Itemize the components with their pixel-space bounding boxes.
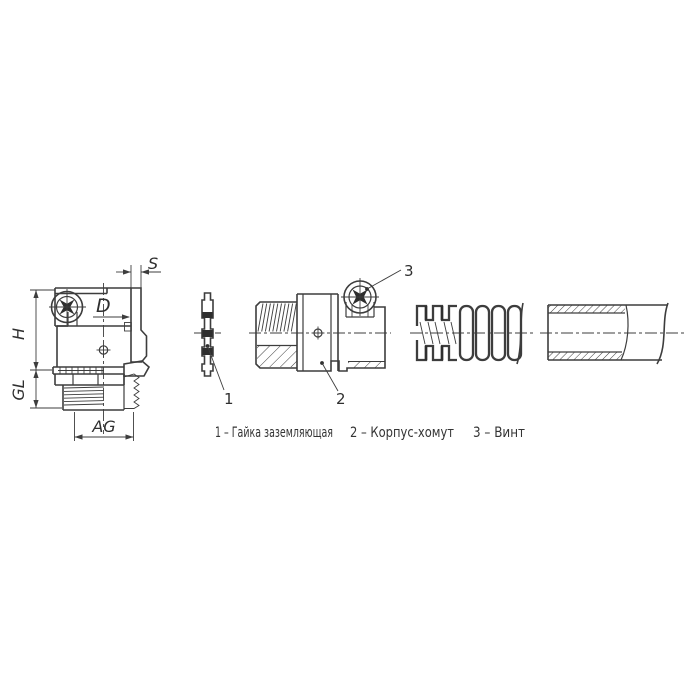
technical-drawing-page: S D H GL bbox=[0, 0, 700, 700]
callout-3-label: 3 bbox=[404, 262, 414, 280]
callout-2-label: 2 bbox=[336, 390, 346, 408]
smooth-tube-view bbox=[540, 303, 686, 364]
dimension-gl-label: GL bbox=[9, 379, 28, 400]
phillips-screw-head-icon-2 bbox=[341, 278, 379, 316]
dimension-s: S bbox=[116, 254, 161, 288]
dimension-d-label: D bbox=[96, 295, 111, 317]
legend-line: 1 – Гайка заземляющая2 – Корпус-хомут3 –… bbox=[215, 425, 525, 441]
body-hole bbox=[97, 343, 111, 357]
legend-item-3: 3 – Винт bbox=[473, 425, 525, 441]
cable-gland-drawing: S D H GL bbox=[0, 0, 700, 700]
dimension-ag-label: AG bbox=[91, 417, 115, 436]
dimension-d: D bbox=[93, 295, 130, 320]
dimension-s-label: S bbox=[148, 254, 158, 273]
dimension-gl: GL bbox=[9, 370, 62, 408]
legend-item-1: 1 – Гайка заземляющая bbox=[215, 425, 333, 441]
grounding-nut-view: 1 bbox=[194, 293, 234, 408]
male-thread bbox=[63, 374, 139, 410]
clamp-body bbox=[297, 294, 385, 371]
body-clamp-view: 2 3 bbox=[249, 262, 414, 408]
section-wall bbox=[125, 288, 147, 362]
dimension-h: H bbox=[9, 290, 55, 370]
dimension-ag: AG bbox=[75, 412, 134, 441]
callout-2: 2 bbox=[320, 361, 345, 408]
legend-item-2: 2 – Корпус-хомут bbox=[350, 425, 454, 441]
dimension-h-label: H bbox=[9, 328, 28, 340]
assembled-view: S D H GL bbox=[9, 254, 161, 441]
callout-1-label: 1 bbox=[224, 390, 234, 408]
clamp-thread bbox=[256, 302, 297, 368]
legend: 1 – Гайка заземляющая2 – Корпус-хомут3 –… bbox=[215, 425, 525, 441]
corrugated-conduit-view bbox=[410, 303, 535, 364]
body-outline bbox=[55, 288, 131, 367]
